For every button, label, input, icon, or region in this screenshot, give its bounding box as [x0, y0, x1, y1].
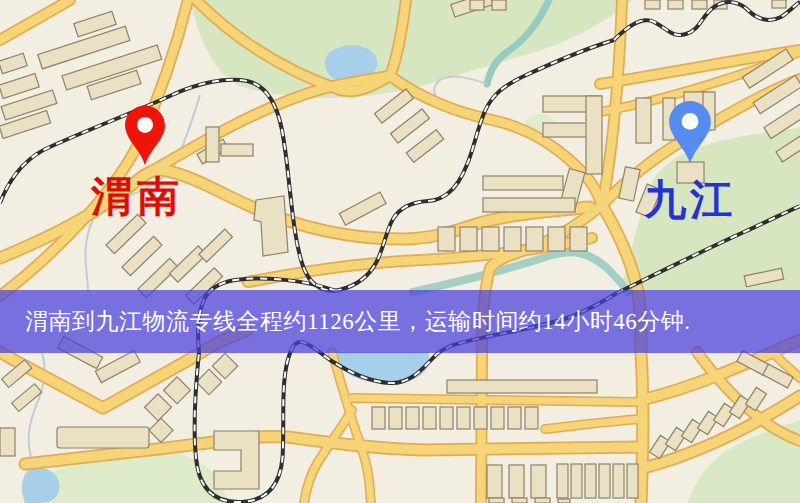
route-info-text: 渭南到九江物流专线全程约1126公里，运输时间约14小时46分钟.: [25, 306, 690, 337]
destination-pin[interactable]: [668, 99, 712, 167]
map-screenshot: 渭南 九江 渭南到九江物流专线全程约1126公里，运输时间约14小时46分钟.: [0, 0, 800, 503]
route-info-banner: 渭南到九江物流专线全程约1126公里，运输时间约14小时46分钟.: [0, 290, 800, 353]
origin-label: 渭南: [91, 176, 183, 218]
origin-pin[interactable]: [124, 103, 166, 169]
destination-label: 九江: [644, 179, 736, 221]
location-pin-icon: [668, 99, 712, 167]
location-pin-icon: [124, 103, 166, 169]
map-canvas[interactable]: [0, 0, 800, 503]
